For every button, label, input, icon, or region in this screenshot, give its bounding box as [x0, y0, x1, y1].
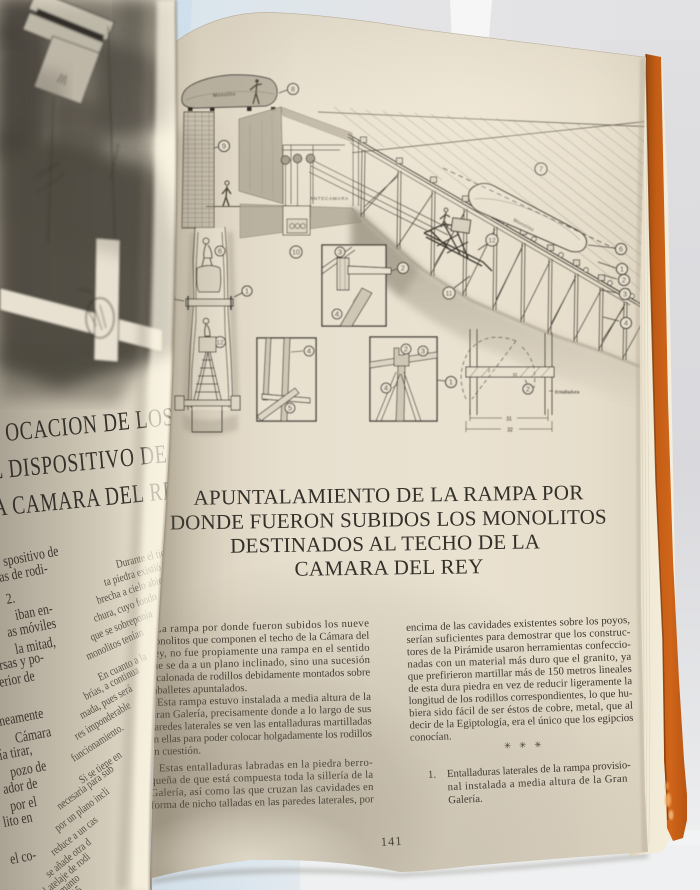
svg-text:4: 4 — [384, 384, 388, 393]
svg-text:5: 5 — [288, 404, 292, 413]
svg-text:2: 2 — [622, 276, 626, 285]
svg-text:4: 4 — [335, 310, 339, 319]
svg-text:11: 11 — [446, 290, 453, 297]
svg-text:3: 3 — [338, 248, 342, 257]
svg-text:32: 32 — [507, 428, 513, 434]
svg-text:2: 2 — [526, 385, 530, 394]
svg-text:10: 10 — [292, 250, 300, 257]
svg-text:3: 3 — [421, 347, 425, 356]
svg-text:Entalladura: Entalladura — [555, 390, 580, 396]
svg-text:4: 4 — [624, 319, 628, 328]
svg-text:2: 2 — [401, 264, 405, 273]
svg-text:1: 1 — [620, 265, 624, 274]
svg-text:6: 6 — [619, 245, 623, 254]
svg-text:DESTINADOS AL TECHO DE LA: DESTINADOS AL TECHO DE LA — [230, 529, 541, 557]
svg-text:3: 3 — [623, 290, 627, 299]
svg-text:31: 31 — [506, 417, 512, 423]
svg-text:12: 12 — [488, 237, 496, 244]
svg-text:4: 4 — [307, 347, 311, 356]
svg-text:1: 1 — [245, 287, 249, 296]
svg-text:1: 1 — [449, 378, 453, 387]
svg-text:2: 2 — [404, 345, 408, 354]
svg-text:32: 32 — [513, 372, 518, 377]
